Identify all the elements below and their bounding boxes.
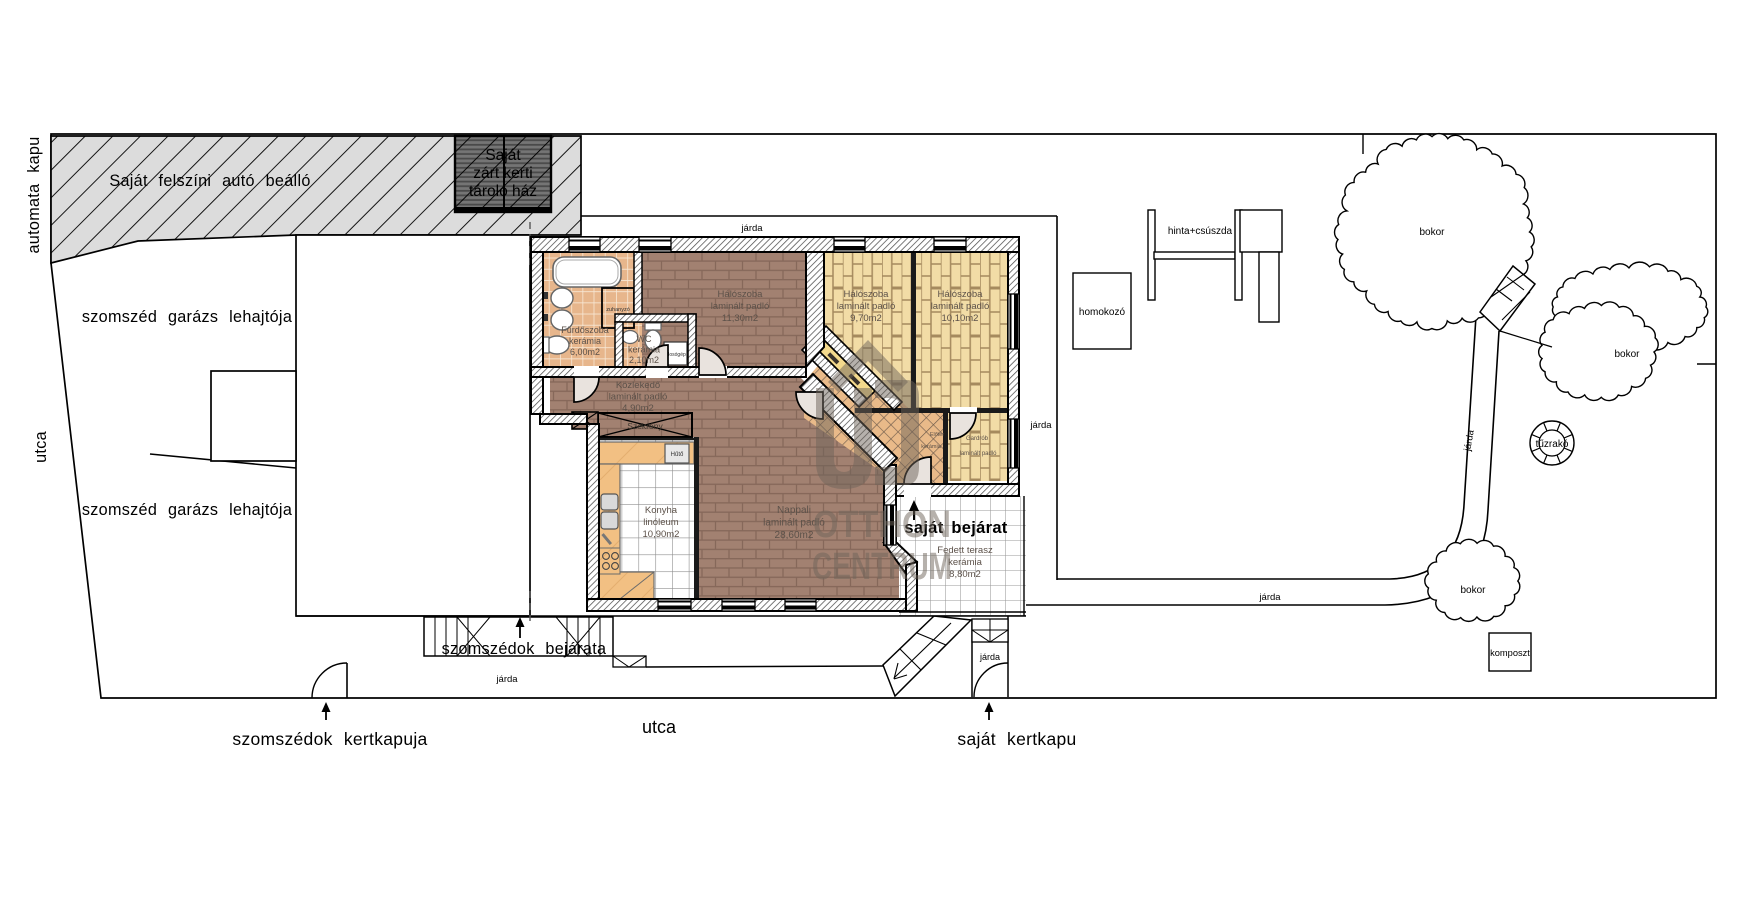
svg-text:szomszédok kertkapuja: szomszédok kertkapuja <box>232 729 427 749</box>
svg-text:szomszéd garázs lehajtója: szomszéd garázs lehajtója <box>82 501 292 519</box>
svg-text:szomszédok bejárata: szomszédok bejárata <box>442 640 607 658</box>
svg-text:Hálószoba: Hálószoba <box>844 289 890 300</box>
svg-text:Előtér: Előtér <box>930 432 945 438</box>
svg-text:Hálószoba: Hálószoba <box>718 289 764 300</box>
svg-text:saját kertkapu: saját kertkapu <box>957 729 1076 749</box>
svg-text:bokor: bokor <box>1419 227 1445 238</box>
svg-text:laminált padló: laminált padló <box>837 301 896 312</box>
svg-text:utca: utca <box>642 717 677 737</box>
svg-text:laminált padló: laminált padló <box>711 301 770 312</box>
svg-text:4,90m2: 4,90m2 <box>622 403 654 414</box>
svg-text:komposzt: komposzt <box>1490 648 1530 658</box>
svg-text:9,70m2: 9,70m2 <box>850 313 882 324</box>
svg-text:6,00m2: 6,00m2 <box>570 347 600 357</box>
svg-text:járda: járda <box>1258 592 1281 603</box>
svg-text:Gardrób: Gardrób <box>966 436 989 442</box>
svg-text:8,80m2: 8,80m2 <box>949 569 981 580</box>
svg-text:tároló ház: tároló ház <box>469 183 537 200</box>
svg-text:kerámia: kerámia <box>569 336 601 346</box>
svg-text:járda: járda <box>979 652 1000 662</box>
svg-text:WC: WC <box>637 334 652 344</box>
svg-text:10,10m2: 10,10m2 <box>942 313 979 324</box>
svg-text:kerámia: kerámia <box>628 345 660 355</box>
svg-text:Saját felszíni autó beálló: Saját felszíni autó beálló <box>109 172 310 190</box>
svg-text:Közlekedő: Közlekedő <box>616 380 660 391</box>
svg-text:bokor: bokor <box>1614 349 1640 360</box>
svg-text:28,60m2: 28,60m2 <box>775 530 814 541</box>
svg-text:járda: járda <box>1029 420 1052 431</box>
svg-text:kerámia: kerámia <box>921 444 942 450</box>
svg-text:Saját: Saját <box>485 147 521 164</box>
svg-text:laminált padló: laminált padló <box>959 451 997 457</box>
svg-text:szomszéd garázs lehajtója: szomszéd garázs lehajtója <box>82 308 292 326</box>
svg-text:linóleum: linóleum <box>643 517 678 528</box>
svg-text:11,30m2: 11,30m2 <box>722 313 758 324</box>
svg-text:Hálószoba: Hálószoba <box>938 289 984 300</box>
svg-text:kerámia: kerámia <box>948 557 983 568</box>
svg-text:zuhanyzó: zuhanyzó <box>606 307 630 313</box>
svg-text:Nappali: Nappali <box>777 505 811 516</box>
svg-text:tűzrakó: tűzrakó <box>1536 439 1569 450</box>
svg-text:homokozó: homokozó <box>1079 307 1126 318</box>
svg-text:OTTHON: OTTHON <box>813 504 951 546</box>
svg-text:bokor: bokor <box>1460 585 1486 596</box>
svg-text:automata kapu: automata kapu <box>25 137 43 254</box>
svg-text:Konyha: Konyha <box>645 505 678 516</box>
svg-text:utca: utca <box>32 431 50 463</box>
svg-text:CENTRUM: CENTRUM <box>812 546 952 588</box>
svg-text:zárt kerti: zárt kerti <box>473 165 532 182</box>
svg-text:járda: járda <box>495 674 518 685</box>
svg-text:2,10m2: 2,10m2 <box>629 355 659 365</box>
svg-text:Szekrény: Szekrény <box>627 421 663 431</box>
svg-text:laminált padló: laminált padló <box>609 392 668 403</box>
svg-text:Hűtő: Hűtő <box>671 452 684 458</box>
svg-text:Fürdőszoba: Fürdőszoba <box>561 325 609 335</box>
svg-text:járda: járda <box>740 223 763 234</box>
svg-text:hinta+csúszda: hinta+csúszda <box>1168 226 1233 237</box>
svg-text:10,90m2: 10,90m2 <box>643 529 680 540</box>
svg-text:laminált padló: laminált padló <box>931 301 990 312</box>
